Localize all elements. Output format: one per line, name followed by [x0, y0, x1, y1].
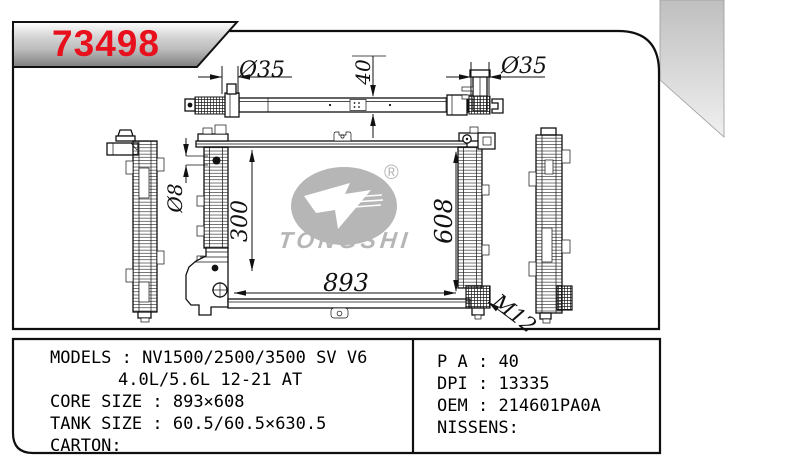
- spec-value: 60.5/60.5×630.5: [173, 414, 327, 434]
- spec-separator: :: [142, 392, 173, 412]
- spec-table-left: MODELS : NV1500/2500/3500 SV V6 4.0L/5.6…: [50, 347, 367, 457]
- spec-label: OEM: [437, 396, 468, 416]
- watermark-brand-text: TONGSHI: [224, 227, 467, 254]
- spec-label: CARTON: [50, 436, 111, 456]
- dim-right-inlet-label: Ø35: [501, 56, 547, 78]
- spec-label: P A: [437, 352, 468, 372]
- spec-separator: :: [111, 348, 142, 368]
- registered-trademark-icon: ®: [384, 162, 399, 185]
- spec-separator: :: [142, 414, 173, 434]
- dim-core-width-label: 893: [323, 271, 369, 295]
- spec-label: NISSENS: [437, 418, 509, 438]
- spec-label: CORE SIZE: [50, 392, 142, 412]
- spec-separator: :: [468, 374, 499, 394]
- spec-row-models-cont: 4.0L/5.6L 12-21 AT: [118, 369, 367, 391]
- catalog-page: 73498 Ø35 Ø35 40 Ø8 300 893 608 M12 ® TO…: [0, 0, 808, 468]
- dim-tank-depth-label: 40: [353, 59, 373, 84]
- spec-row-oem: OEM : 214601PA0A: [437, 395, 601, 417]
- spec-value: 4.0L/5.6L 12-21 AT: [118, 370, 302, 390]
- spec-row-nissens: NISSENS:: [437, 417, 601, 439]
- part-number: 73498: [13, 21, 199, 67]
- spec-label: DPI: [437, 374, 468, 394]
- spec-value: NV1500/2500/3500 SV V6: [142, 348, 367, 368]
- right-side-view: [529, 128, 572, 323]
- spec-row-core-size: CORE SIZE : 893×608: [50, 391, 367, 413]
- spec-table-right: P A : 40 DPI : 13335 OEM : 214601PA0A NI…: [437, 351, 601, 439]
- spec-label: MODELS: [50, 348, 111, 368]
- spec-separator: :: [468, 352, 499, 372]
- spec-value: 893×608: [173, 392, 245, 412]
- page-fold: [660, 0, 724, 137]
- dim-pin-diameter-label: Ø8: [165, 183, 185, 212]
- left-side-view: [107, 130, 164, 322]
- spec-row-models: MODELS : NV1500/2500/3500 SV V6: [50, 347, 367, 369]
- dim-left-inlet-label: Ø35: [239, 60, 285, 82]
- spec-row-tank-size: TANK SIZE : 60.5/60.5×630.5: [50, 413, 367, 435]
- spec-row-pa: P A : 40: [437, 351, 601, 373]
- spec-row-carton: CARTON:: [50, 435, 367, 457]
- spec-value: 40: [498, 352, 518, 372]
- spec-label: TANK SIZE: [50, 414, 142, 434]
- spec-value: 13335: [498, 374, 549, 394]
- spec-value: 214601PA0A: [498, 396, 600, 416]
- spec-row-dpi: DPI : 13335: [437, 373, 601, 395]
- spec-separator: :: [111, 436, 121, 456]
- spec-separator: :: [509, 418, 519, 438]
- spec-separator: :: [468, 396, 499, 416]
